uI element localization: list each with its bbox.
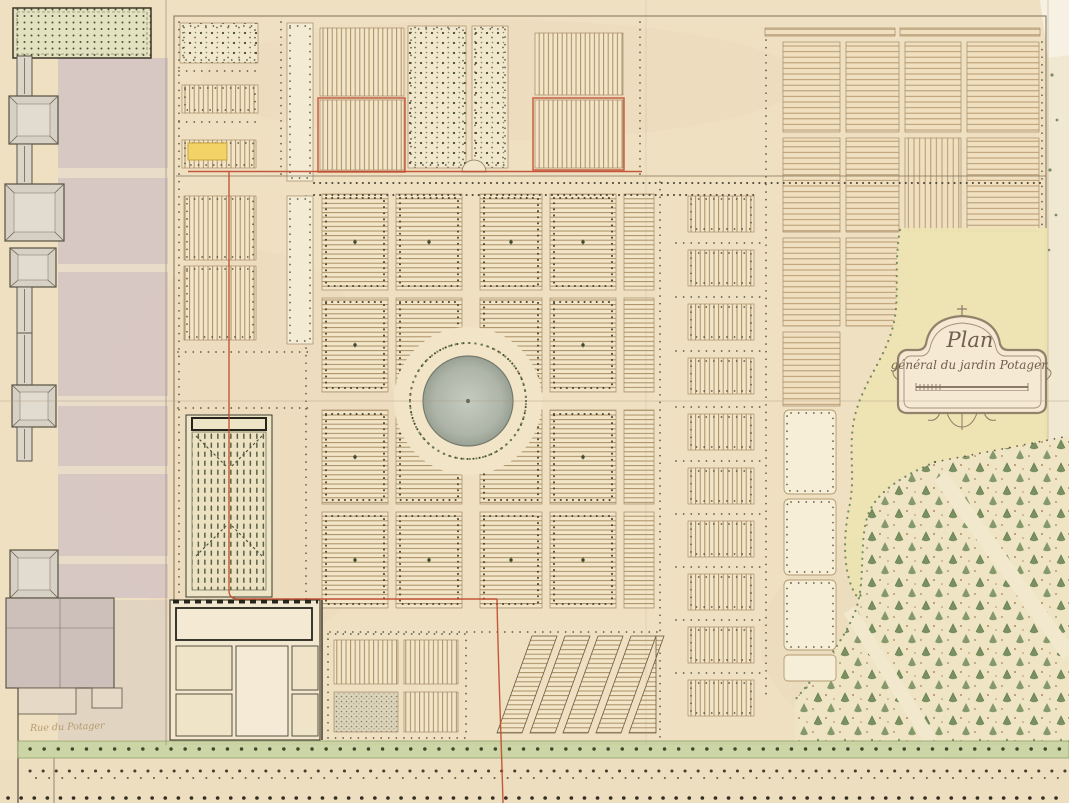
garden-plot [320,100,404,170]
cartouche-title-line1: Plan [946,328,994,352]
garden-plot [624,410,654,504]
pavilion-roof [9,96,58,144]
garden-plot [783,138,840,232]
garden-plot [404,692,458,732]
garden-plot [784,499,836,575]
pavilion-roof [10,248,56,287]
long-strip-beds [784,410,836,681]
wing-roof [17,56,32,96]
scanned-map-page: Rue du Potager [0,0,1069,803]
garden-plot [784,580,836,650]
wing-roof [17,333,32,385]
garden-plot [783,42,840,132]
wing-roof [17,287,32,333]
garden-plot [688,196,754,232]
garden-plot [535,100,623,168]
garden-plot [905,138,961,232]
garden-plot [180,23,258,63]
garden-plot [472,26,508,168]
espalier-strip [287,196,313,344]
garden-plot [688,574,754,610]
garden-plot [624,194,654,290]
garden-plot [967,138,1039,232]
garden-plot [184,266,256,340]
green-band [18,741,1069,758]
garden-plot [404,640,458,684]
garden-plot [182,85,258,113]
garden-plot [688,680,754,716]
garden-plot [624,298,654,392]
stable-building [6,598,122,714]
courtyard-wash [58,58,168,598]
garden-plot [408,26,466,168]
garden-plot [320,28,404,96]
garden-plot [688,414,754,450]
pavilion-roof [10,550,58,598]
top-left-plots [179,23,313,181]
garden-plot [783,332,840,406]
pavilion-roof [12,385,56,427]
garden-plot [688,521,754,557]
garden-plot [846,238,899,326]
garden-plot [334,692,398,732]
pavilion-roof [5,184,64,241]
garden-plot [846,138,899,232]
garden-plot [784,410,836,494]
garden-plot [184,196,256,260]
garden-plot [535,33,623,95]
garden-plot [688,468,754,504]
garden-plot [688,627,754,663]
garden-plot [765,28,895,36]
yellow-highlight [188,143,227,160]
garden-plot [967,42,1039,132]
garden-plot [688,358,754,394]
orchard-grid-plot [13,8,151,58]
garden-plot [334,640,398,684]
garden-plot [783,238,840,326]
wing-roof [17,427,32,461]
wing-roof [17,144,32,184]
garden-plot [905,42,961,132]
garden-plot [846,42,899,132]
garden-plot [624,512,654,608]
garden-plot [688,250,754,286]
garden-plot [688,304,754,340]
service-building-plan [170,600,322,740]
top-center-plots [281,22,640,178]
cartouche-title-line2: général du jardin Potager. [891,358,1050,372]
garden-plan-map: Rue du Potager [0,0,1069,803]
garden-plot [784,655,836,681]
left-buildings: Rue du Potager [5,8,168,803]
garden-plot [900,28,1040,36]
espalier-strip [287,23,313,181]
